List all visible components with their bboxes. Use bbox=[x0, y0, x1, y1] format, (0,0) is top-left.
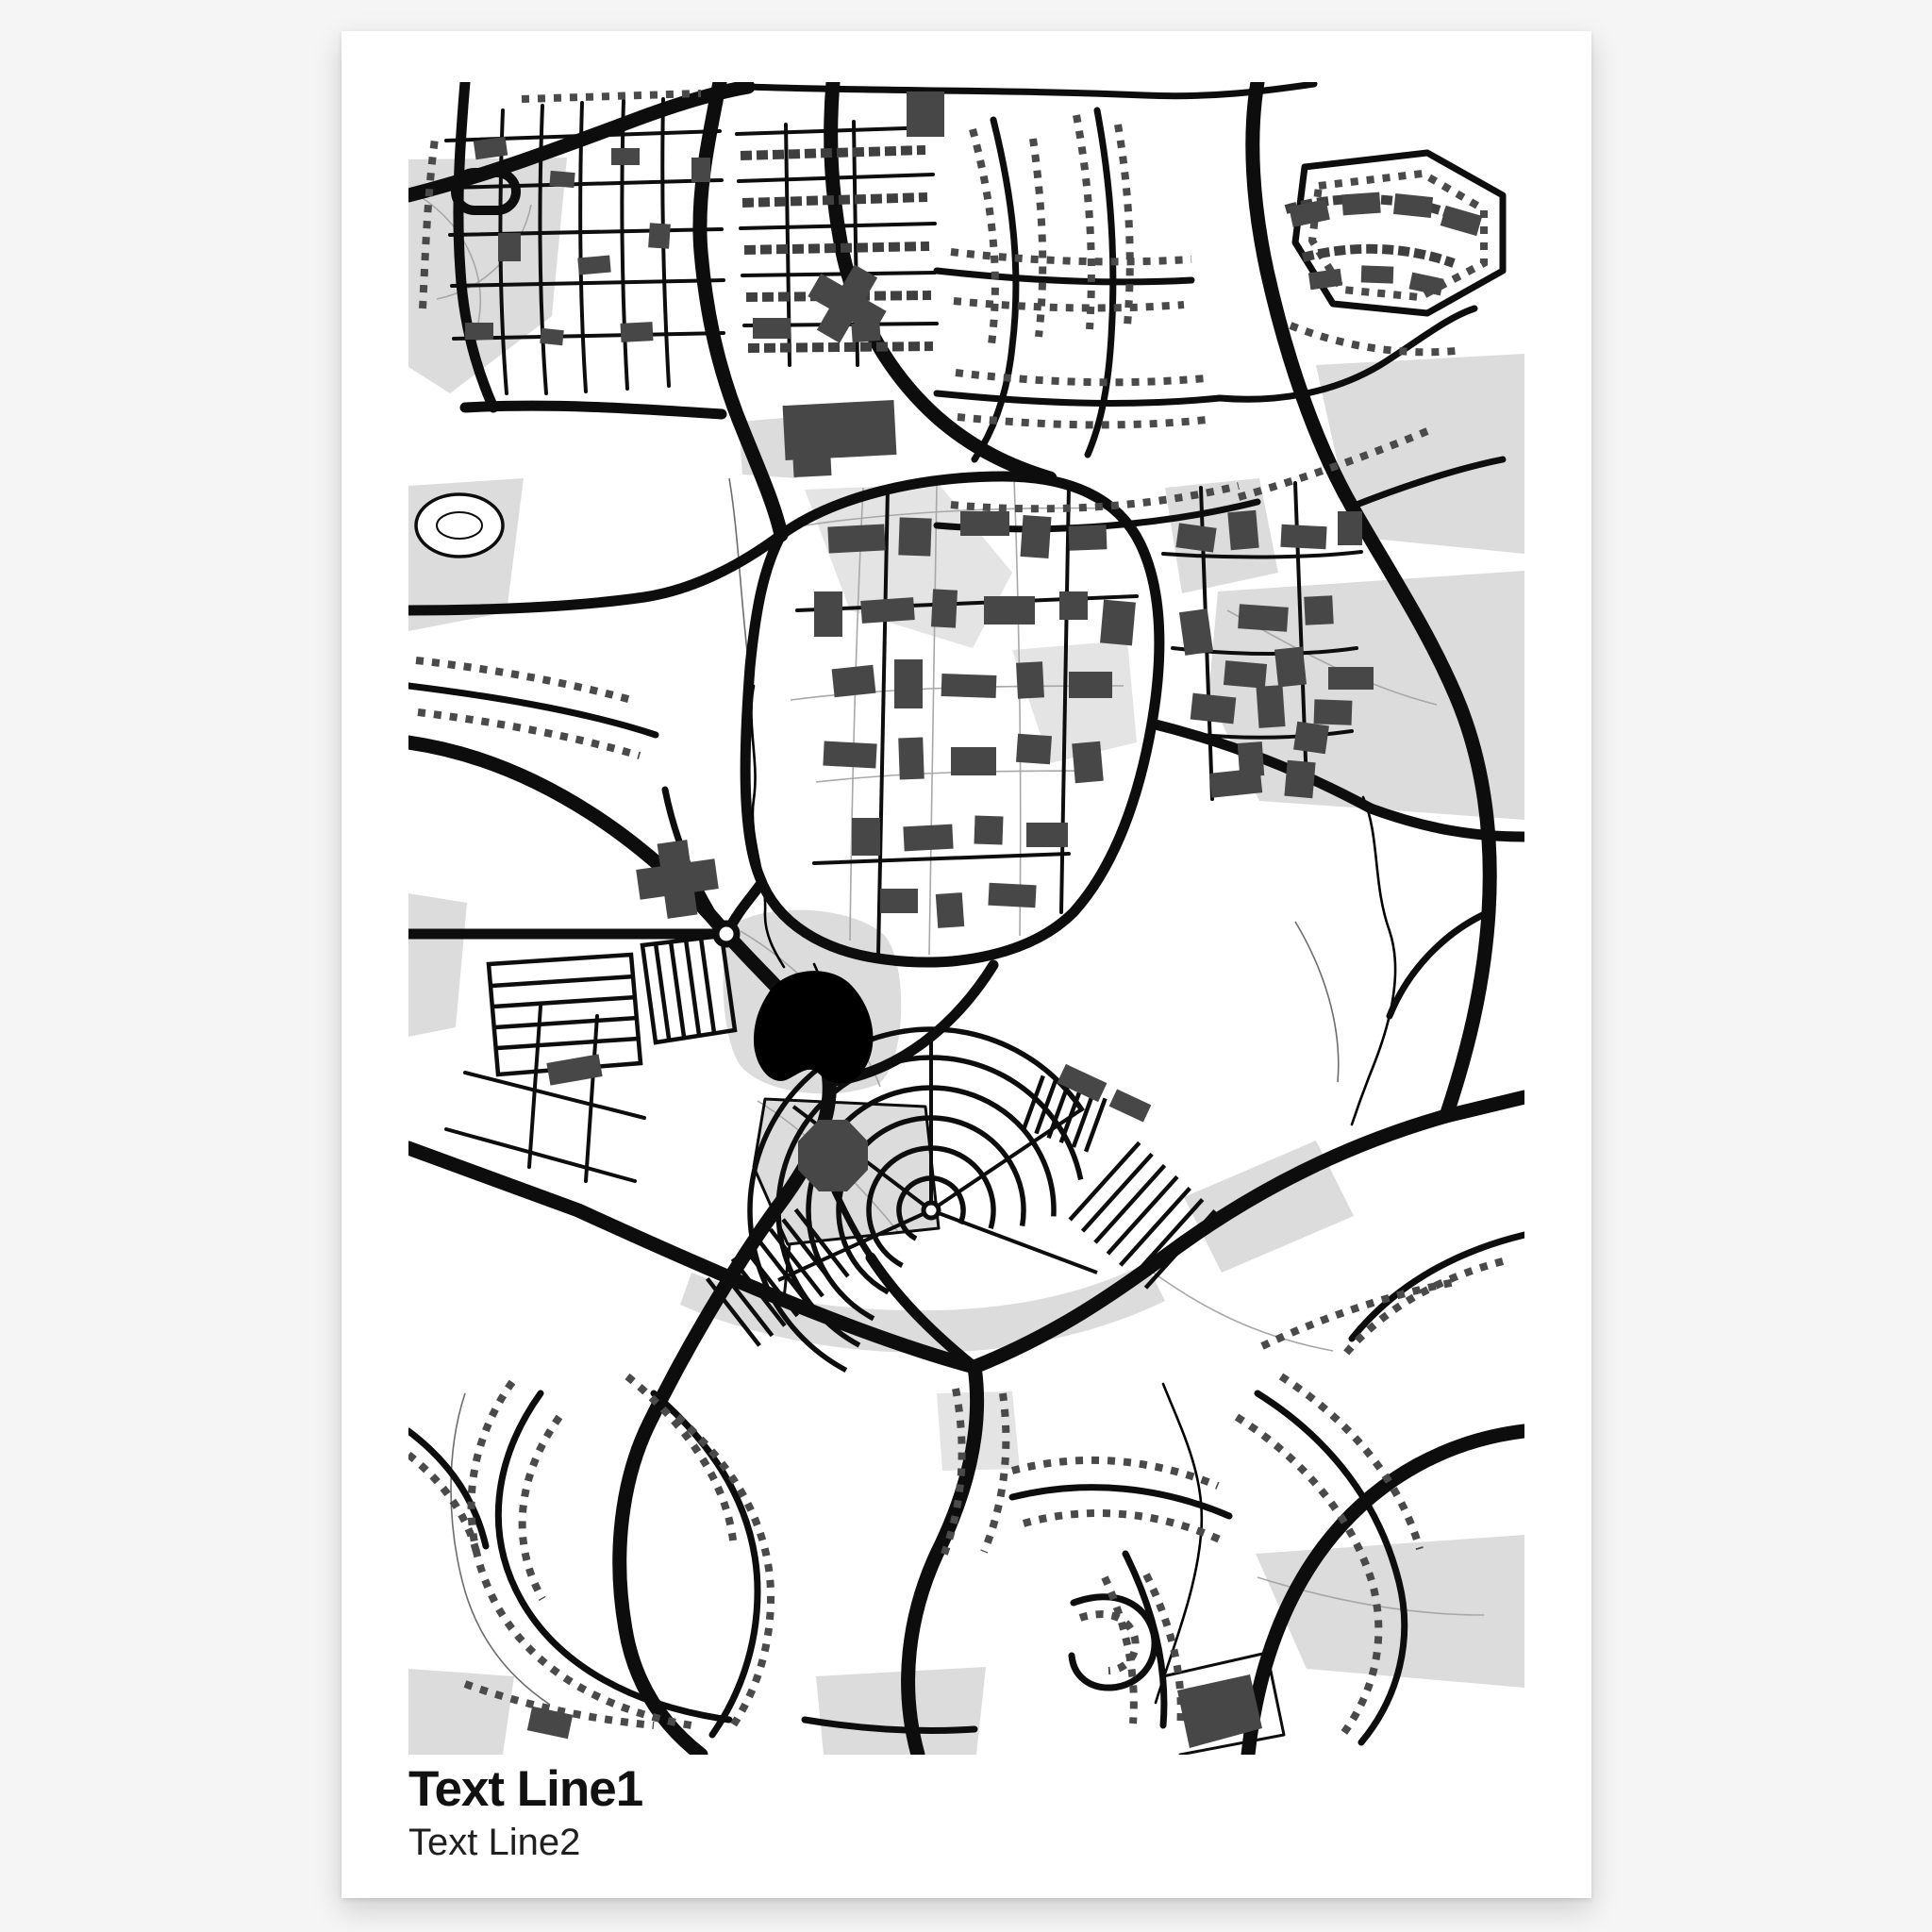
map-graphic bbox=[408, 82, 1524, 1755]
map-poster: Text Line1 Text Line2 bbox=[341, 31, 1591, 1898]
poster-title: Text Line1 bbox=[408, 1763, 642, 1816]
city-map bbox=[408, 82, 1524, 1755]
poster-caption: Text Line1 Text Line2 bbox=[408, 1763, 642, 1863]
map-sports-oval bbox=[416, 494, 503, 557]
poster-subtitle: Text Line2 bbox=[408, 1822, 642, 1863]
